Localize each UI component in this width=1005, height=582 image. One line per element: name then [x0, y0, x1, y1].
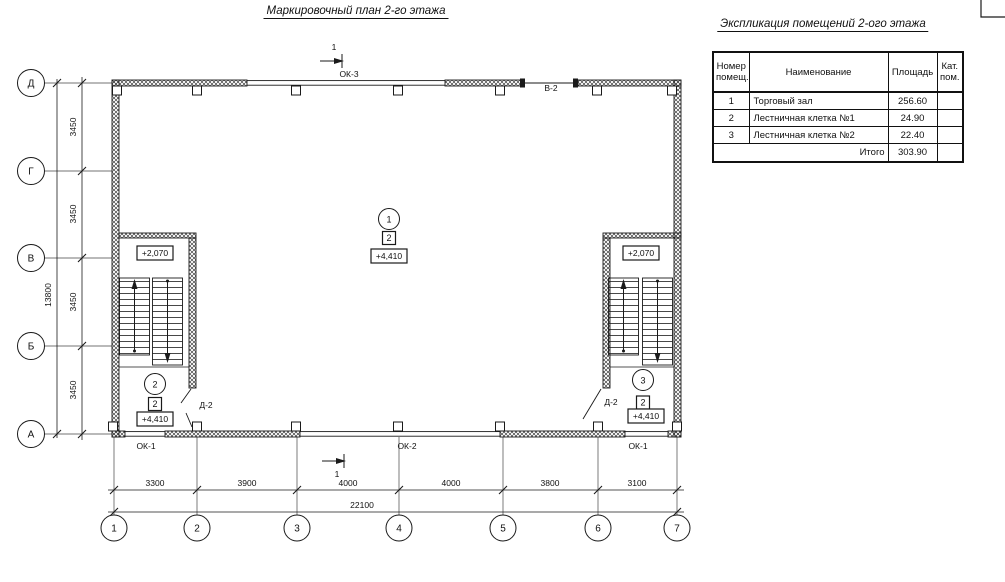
dim-segment: 3900 — [238, 478, 257, 488]
dim-segment: 3100 — [628, 478, 647, 488]
window-ok3-band — [247, 81, 445, 86]
window-ok1-right-band — [625, 432, 668, 437]
axis-label: Г — [28, 167, 34, 178]
window-ok2-band — [300, 432, 500, 437]
room-number: 1 — [386, 215, 391, 225]
axis-col-bubbles: 1 2 3 4 5 6 7 — [101, 515, 690, 541]
dim-segment: 3450 — [68, 204, 78, 223]
staircase-right — [583, 233, 681, 419]
room-number: 2 — [152, 380, 157, 390]
axis-label: Б — [28, 342, 35, 353]
storey-badge: 2 — [386, 233, 391, 243]
window-label-ok1: ОК-1 — [136, 441, 155, 451]
room-marker-hall: 1 2 +4,410 — [371, 209, 407, 264]
axis-label: 4 — [396, 524, 402, 535]
level-label: +2,070 — [628, 248, 655, 258]
vent-label-v2: В-2 — [544, 83, 558, 93]
section-number: 1 — [335, 469, 340, 479]
dimension-labels-left: 13800 3450 3450 3450 3450 — [43, 117, 78, 399]
storey-badge: 2 — [152, 399, 157, 409]
section-marker-bottom: 1 — [322, 454, 346, 479]
axis-label: В — [28, 254, 35, 265]
section-marker-top: 1 — [320, 42, 344, 68]
window-ok1-left-band — [125, 432, 165, 437]
dim-segment: 3800 — [541, 478, 560, 488]
dimension-lines-bottom — [108, 486, 684, 516]
dim-segment: 3450 — [68, 292, 78, 311]
storey-badge: 2 — [640, 398, 645, 408]
level-label: +4,410 — [142, 414, 169, 424]
dim-total-width: 22100 — [350, 500, 374, 510]
window-label-ok1: ОК-1 — [628, 441, 647, 451]
door-label-d2: Д-2 — [604, 397, 618, 407]
window-label-ok2: ОК-2 — [397, 441, 416, 451]
dim-segment: 4000 — [442, 478, 461, 488]
floor-plan-drawing: 13800 3450 3450 3450 3450 3300 3900 4000… — [0, 0, 1005, 582]
axis-label: 5 — [500, 524, 506, 535]
dim-segment: 3450 — [68, 117, 78, 136]
dim-total-height: 13800 — [43, 283, 53, 307]
axis-label: Д — [28, 79, 35, 90]
room-marker-stair2: 3 2 +4,410 — [628, 370, 664, 424]
axis-label: 2 — [194, 524, 200, 535]
level-label: +2,070 — [142, 248, 169, 258]
axis-label: 7 — [674, 524, 680, 535]
axis-label: 6 — [595, 524, 601, 535]
dimension-labels-bottom: 3300 3900 4000 4000 3800 3100 22100 — [146, 478, 647, 510]
door-d2-left — [181, 389, 192, 427]
level-label: +4,410 — [376, 251, 403, 261]
door-d2-right — [583, 389, 601, 419]
dim-segment: 4000 — [339, 478, 358, 488]
axis-label: 3 — [294, 524, 300, 535]
room-number: 3 — [640, 376, 645, 386]
sheet-frame-corner — [981, 0, 1005, 17]
drawing-sheet: { "titles": { "plan": "Маркировочный пла… — [0, 0, 1005, 582]
axis-label: А — [28, 430, 35, 441]
window-label-ok3: ОК-3 — [339, 69, 358, 79]
dim-segment: 3450 — [68, 380, 78, 399]
door-label-d2: Д-2 — [199, 400, 213, 410]
dim-segment: 3300 — [146, 478, 165, 488]
axis-row-bubbles: Д Г В Б А — [18, 70, 45, 448]
section-number: 1 — [332, 42, 337, 52]
room-marker-stair1: 2 2 +4,410 — [137, 374, 173, 427]
axis-label: 1 — [111, 524, 117, 535]
level-label: +4,410 — [633, 411, 660, 421]
